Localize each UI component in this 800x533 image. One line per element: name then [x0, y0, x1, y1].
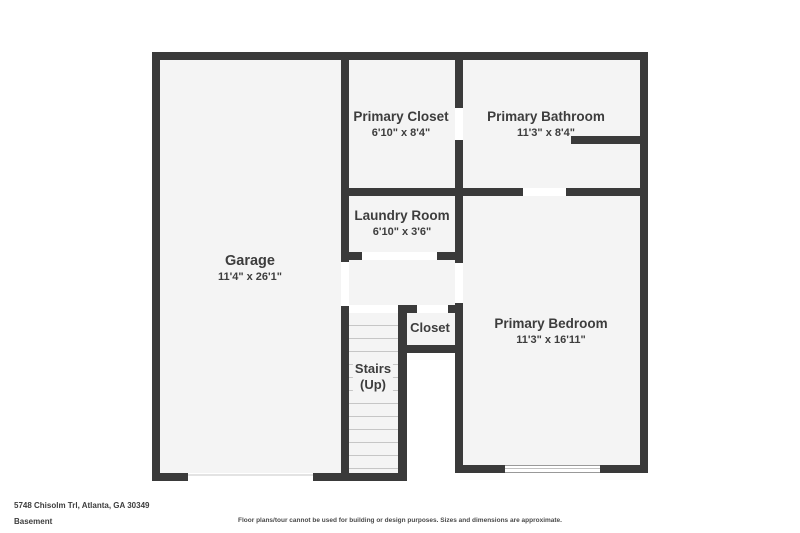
primary-closet-dims: 6'10" x 8'4" — [353, 127, 448, 141]
closet-label: Closet — [410, 320, 450, 336]
hallway-floor — [349, 260, 455, 305]
primary-bedroom-name: Primary Bedroom — [494, 316, 607, 333]
stairs-name: Stairs — [355, 361, 391, 377]
primary-closet-label: Primary Closet 6'10" x 8'4" — [353, 109, 448, 141]
closet-name: Closet — [410, 320, 450, 336]
wall-closet-bottom — [398, 345, 463, 353]
stairs-direction: (Up) — [355, 377, 391, 393]
wall-hall-bedroom — [455, 196, 463, 473]
property-address: 5748 Chisolm Trl, Atlanta, GA 30349 — [14, 501, 149, 510]
door-opening-garage-hall — [341, 262, 349, 306]
door-opening-closet-bathroom — [455, 108, 463, 140]
primary-closet-name: Primary Closet — [353, 109, 448, 126]
wall-mid-horizontal — [341, 188, 648, 196]
opening-laundry — [362, 252, 437, 260]
wall-stairs-right — [398, 305, 407, 481]
floor-level-label: Basement — [14, 517, 52, 526]
garage-door-icon — [188, 474, 313, 479]
stairs-label: Stairs (Up) — [353, 361, 393, 394]
primary-bathroom-dims: 11'3" x 8'4" — [487, 127, 605, 141]
door-opening-bathroom — [523, 188, 566, 196]
laundry-room-label: Laundry Room 6'10" x 3'6" — [354, 208, 449, 240]
door-opening-hall-bedroom — [455, 263, 463, 303]
garage-name: Garage — [218, 252, 282, 270]
primary-bathroom-label: Primary Bathroom 11'3" x 8'4" — [487, 109, 605, 141]
laundry-room-dims: 6'10" x 3'6" — [354, 226, 449, 240]
wall-outer-top — [152, 52, 648, 60]
primary-bedroom-dims: 11'3" x 16'11" — [494, 334, 607, 348]
garage-dims: 11'4" x 26'1" — [218, 271, 282, 285]
door-opening-closet — [417, 305, 448, 313]
laundry-room-name: Laundry Room — [354, 208, 449, 225]
wall-outer-right — [640, 52, 648, 473]
opening-stairs-top — [349, 305, 398, 313]
primary-bathroom-name: Primary Bathroom — [487, 109, 605, 126]
wall-outer-left — [152, 52, 160, 481]
floor-plan: Garage 11'4" x 26'1" Primary Closet 6'10… — [0, 0, 800, 533]
bedroom-window-icon — [505, 465, 600, 473]
garage-label: Garage 11'4" x 26'1" — [218, 252, 282, 285]
disclaimer-text: Floor plans/tour cannot be used for buil… — [238, 517, 562, 524]
primary-bedroom-label: Primary Bedroom 11'3" x 16'11" — [494, 316, 607, 348]
